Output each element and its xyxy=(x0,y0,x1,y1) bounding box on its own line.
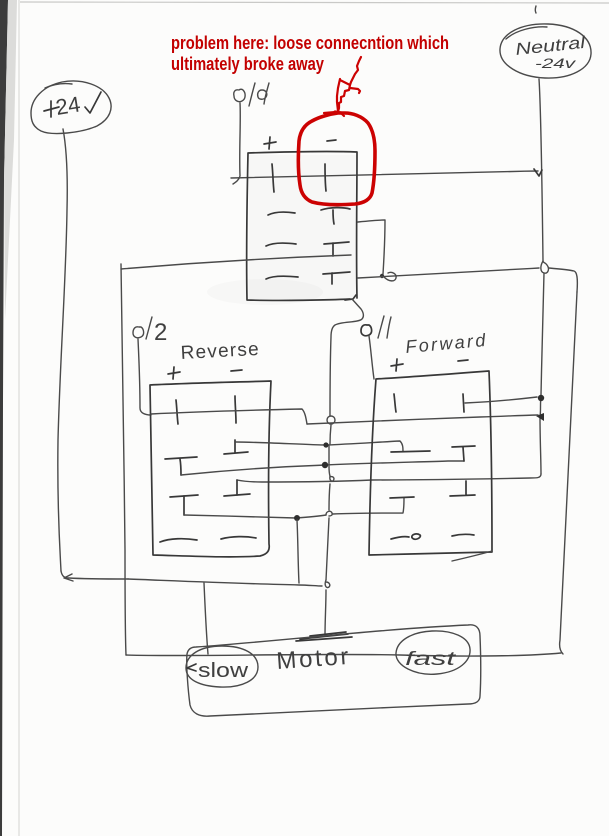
svg-text:Reverse: Reverse xyxy=(180,339,259,364)
svg-text:ultimately broke away: ultimately broke away xyxy=(171,54,324,74)
svg-text:Motor: Motor xyxy=(276,643,350,675)
svg-text:problem here: loose connecntio: problem here: loose connecntion which xyxy=(171,33,449,53)
svg-text:-24v: -24v xyxy=(535,55,576,71)
svg-text:24: 24 xyxy=(54,91,82,120)
svg-text:Forward: Forward xyxy=(405,330,487,357)
svg-text:2: 2 xyxy=(154,319,167,346)
svg-text:slow: slow xyxy=(198,660,249,682)
svg-text:fast: fast xyxy=(405,649,456,670)
